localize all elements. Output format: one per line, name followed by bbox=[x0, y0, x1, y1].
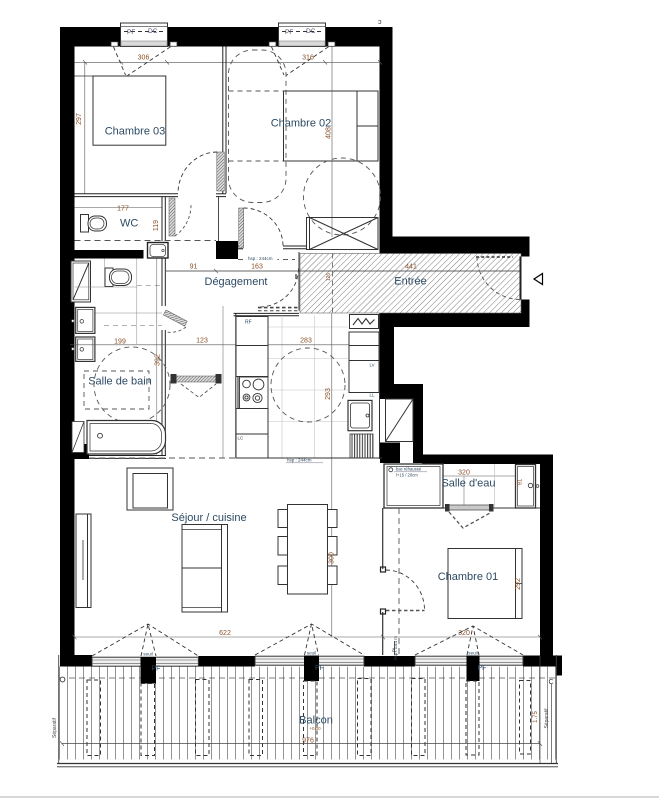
svg-text:622: 622 bbox=[219, 630, 231, 637]
svg-text:hsp : 244cm: hsp : 244cm bbox=[248, 256, 273, 261]
svg-text:hsp : 244cm: hsp : 244cm bbox=[287, 458, 312, 463]
svg-text:DC: DC bbox=[148, 28, 158, 35]
svg-text:320: 320 bbox=[458, 470, 470, 477]
svg-text:seuil: seuil bbox=[307, 651, 316, 656]
svg-text:1.75: 1.75 bbox=[533, 711, 539, 723]
svg-text:PF: PF bbox=[127, 29, 135, 36]
svg-text:ↄ: ↄ bbox=[378, 19, 382, 26]
svg-text:bac réhaussé: bac réhaussé bbox=[396, 467, 422, 472]
svg-text:283: 283 bbox=[300, 338, 312, 345]
svg-text:PF: PF bbox=[152, 666, 161, 673]
svg-text:LV: LV bbox=[370, 363, 375, 368]
svg-text:Pl: Pl bbox=[393, 648, 399, 652]
svg-text:126: 126 bbox=[326, 273, 332, 282]
svg-text:seuil: seuil bbox=[143, 652, 152, 657]
svg-text:Séparatif: Séparatif bbox=[52, 717, 58, 738]
svg-text:163: 163 bbox=[251, 264, 263, 271]
svg-text:119: 119 bbox=[153, 220, 160, 231]
svg-text:300: 300 bbox=[329, 552, 336, 564]
svg-text:DC: DC bbox=[306, 28, 316, 35]
svg-text:Chambre 01: Chambre 01 bbox=[438, 571, 499, 583]
svg-text:Salle de bain: Salle de bain bbox=[88, 376, 152, 388]
svg-text:Chambre 03: Chambre 03 bbox=[105, 126, 166, 138]
svg-text:C: C bbox=[549, 679, 554, 686]
svg-text:441: 441 bbox=[405, 264, 417, 271]
svg-text:seuil: seuil bbox=[468, 651, 477, 656]
svg-text:LL: LL bbox=[370, 393, 375, 398]
svg-text:976: 976 bbox=[302, 738, 314, 745]
svg-text:297: 297 bbox=[76, 113, 83, 125]
svg-text:WC: WC bbox=[120, 218, 138, 230]
svg-text:316: 316 bbox=[302, 55, 314, 62]
svg-text:Séparatif: Séparatif bbox=[544, 708, 550, 729]
svg-text:306: 306 bbox=[138, 55, 150, 62]
svg-text:408: 408 bbox=[326, 127, 333, 139]
svg-text:Séjour / cuisine: Séjour / cuisine bbox=[171, 512, 246, 524]
svg-text:l+15 / 20cm: l+15 / 20cm bbox=[396, 473, 418, 478]
svg-text:320: 320 bbox=[458, 630, 470, 637]
svg-text:91: 91 bbox=[518, 478, 524, 485]
svg-text:Salle d'eau: Salle d'eau bbox=[441, 478, 495, 490]
svg-text:123: 123 bbox=[196, 338, 208, 345]
svg-text:Balcon: Balcon bbox=[299, 715, 333, 727]
svg-text:LC: LC bbox=[238, 436, 244, 441]
svg-text:Chambre 02: Chambre 02 bbox=[271, 118, 332, 130]
svg-text:293: 293 bbox=[325, 388, 332, 400]
svg-text:PF: PF bbox=[478, 665, 487, 672]
svg-text:177: 177 bbox=[117, 206, 129, 213]
svg-text:199: 199 bbox=[114, 339, 126, 346]
svg-text:Dégagement: Dégagement bbox=[205, 276, 268, 288]
svg-text:91: 91 bbox=[190, 264, 198, 271]
svg-text:RF: RF bbox=[245, 320, 252, 326]
svg-text:PF: PF bbox=[315, 665, 324, 672]
svg-text:+0.00: +0.00 bbox=[309, 726, 321, 731]
svg-text:PF: PF bbox=[285, 29, 293, 36]
svg-text:Entrée: Entrée bbox=[394, 276, 426, 288]
svg-text:292: 292 bbox=[515, 578, 522, 590]
